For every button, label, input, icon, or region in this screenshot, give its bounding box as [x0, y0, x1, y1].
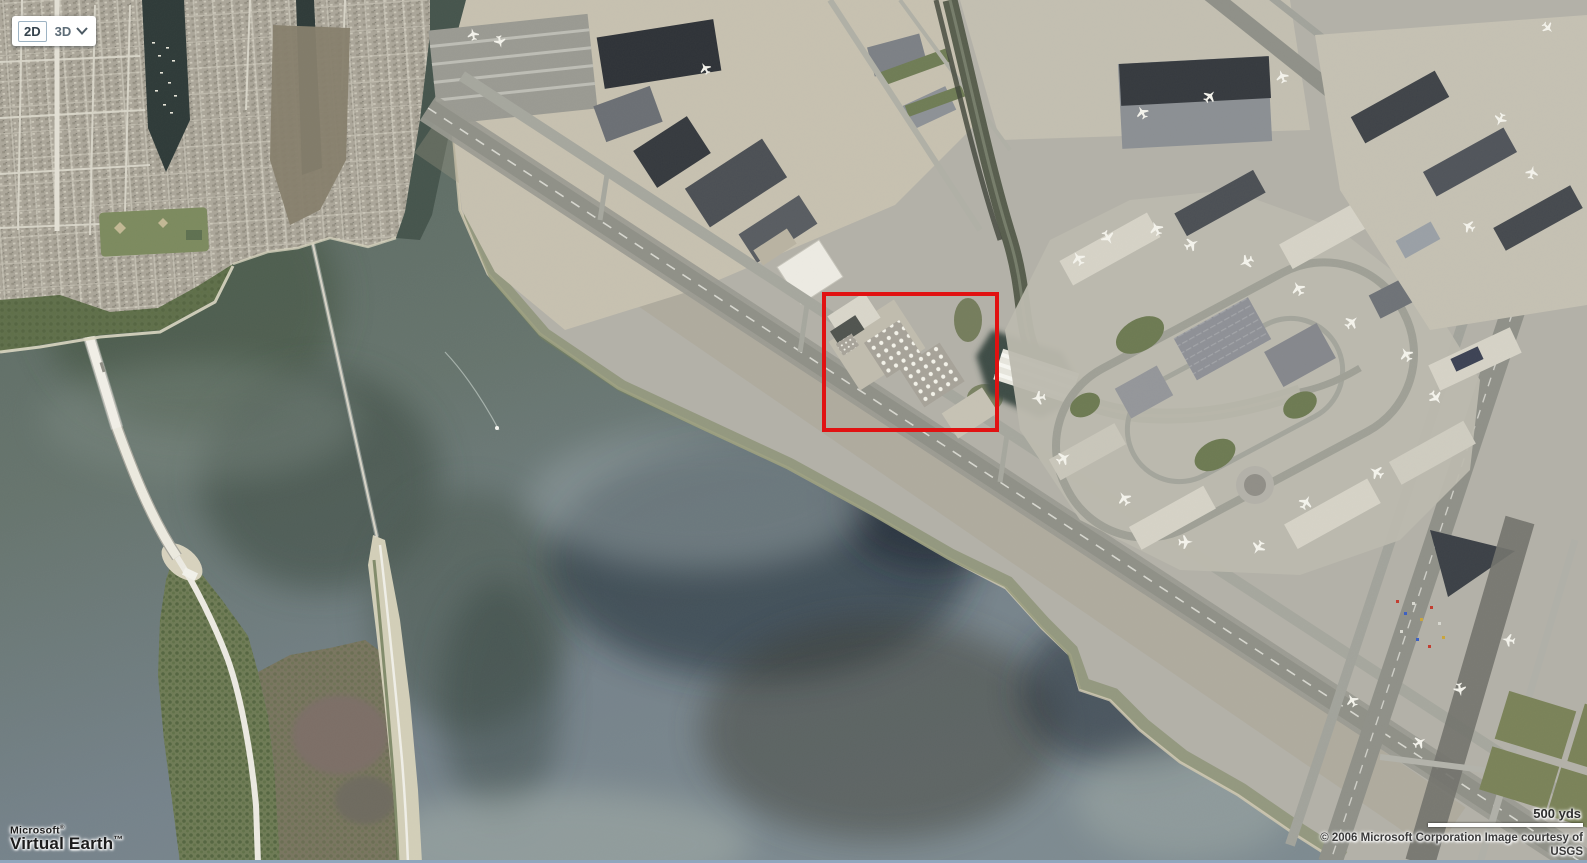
map-viewport: 2D 3D Microsoft® Virtual Earth™ 500 yds … — [0, 0, 1587, 863]
mode-3d-button[interactable]: 3D — [55, 24, 89, 39]
virtual-earth-logo: Microsoft® Virtual Earth™ — [10, 824, 123, 855]
photo-grain — [0, 0, 1587, 863]
map-mode-toolbar: 2D 3D — [12, 16, 96, 46]
satellite-map[interactable] — [0, 0, 1587, 863]
scale-line — [1428, 823, 1583, 827]
annotation-rectangle — [822, 292, 999, 432]
scale-label: 500 yds — [1428, 806, 1581, 821]
attribution-line1: © 2006 Microsoft Corporation Image court… — [1320, 831, 1583, 845]
attribution-line2: USGS — [1320, 845, 1583, 859]
mode-2d-button[interactable]: 2D — [18, 21, 47, 42]
mode-3d-label: 3D — [55, 24, 72, 39]
scale-bar: 500 yds — [1428, 806, 1583, 827]
chevron-down-icon — [76, 27, 88, 35]
attribution: © 2006 Microsoft Corporation Image court… — [1320, 831, 1583, 859]
logo-virtual-earth: Virtual Earth™ — [10, 834, 123, 854]
